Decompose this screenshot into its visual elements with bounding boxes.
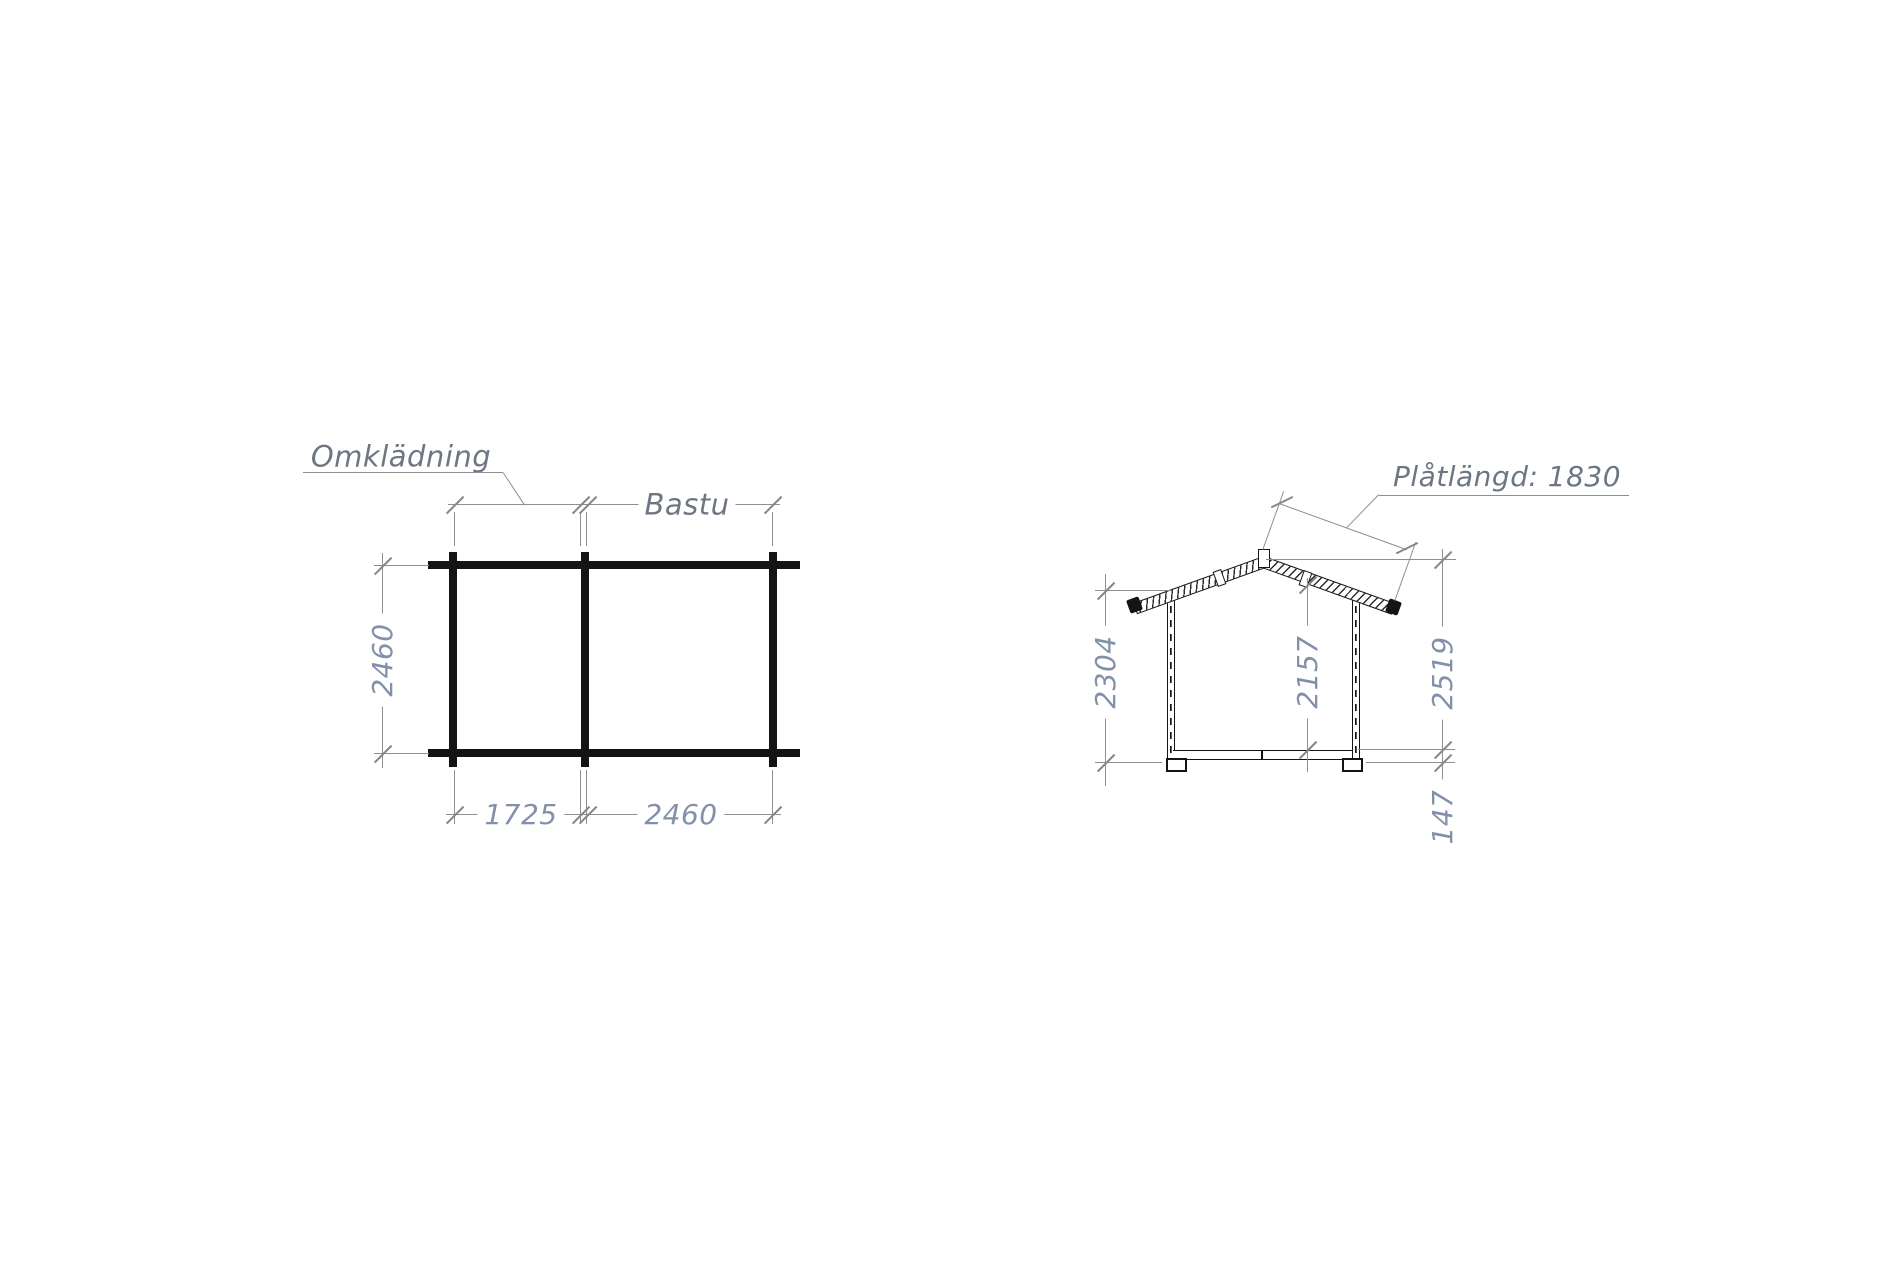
- leader-underline: [303, 472, 503, 473]
- dimension-line: [1279, 503, 1407, 551]
- foundation-foot-right: [1342, 758, 1363, 772]
- extension-line: [772, 512, 773, 546]
- roof-panel-right: [1260, 556, 1396, 615]
- leader-line: [502, 472, 525, 505]
- leader-line: [1346, 494, 1379, 528]
- plan-right-wall: [769, 552, 777, 767]
- floor-center-mark: [1261, 751, 1263, 759]
- dimension-value-total-height: 2519: [1429, 626, 1457, 719]
- dimension-value-floor-thickness: 147: [1429, 780, 1457, 855]
- dimension-value-room1-width: 1725: [477, 801, 564, 829]
- room-label-omkladning: Omklädning: [305, 443, 497, 472]
- plan-top-wall: [428, 561, 800, 569]
- elevation-left-wall: [1167, 592, 1175, 763]
- plan-bottom-wall: [428, 749, 800, 757]
- dimension-value-inner-height: 2157: [1294, 625, 1322, 718]
- extension-line: [580, 512, 581, 546]
- plate-length-label: Plåtlängd: 1830: [1387, 463, 1627, 491]
- extension-line: [1262, 491, 1284, 550]
- extension-line: [454, 512, 455, 546]
- dimension-value-depth: 2460: [369, 613, 397, 706]
- dimension-value-wall-height: 2304: [1092, 625, 1120, 718]
- extension-line: [586, 512, 587, 546]
- leader-underline: [1379, 495, 1629, 496]
- room-label-bastu: Bastu: [638, 491, 735, 520]
- roof-panel-left: [1133, 556, 1269, 615]
- drawing-sheet: Bastu Omklädning 2460 1725 2460: [0, 0, 1900, 1280]
- extension-line: [1266, 559, 1456, 560]
- elevation-right-wall: [1352, 592, 1360, 763]
- dimension-value-room2-width: 2460: [637, 801, 724, 829]
- foundation-foot-left: [1166, 758, 1187, 772]
- plan-left-wall: [449, 552, 457, 767]
- plan-middle-wall: [581, 552, 589, 767]
